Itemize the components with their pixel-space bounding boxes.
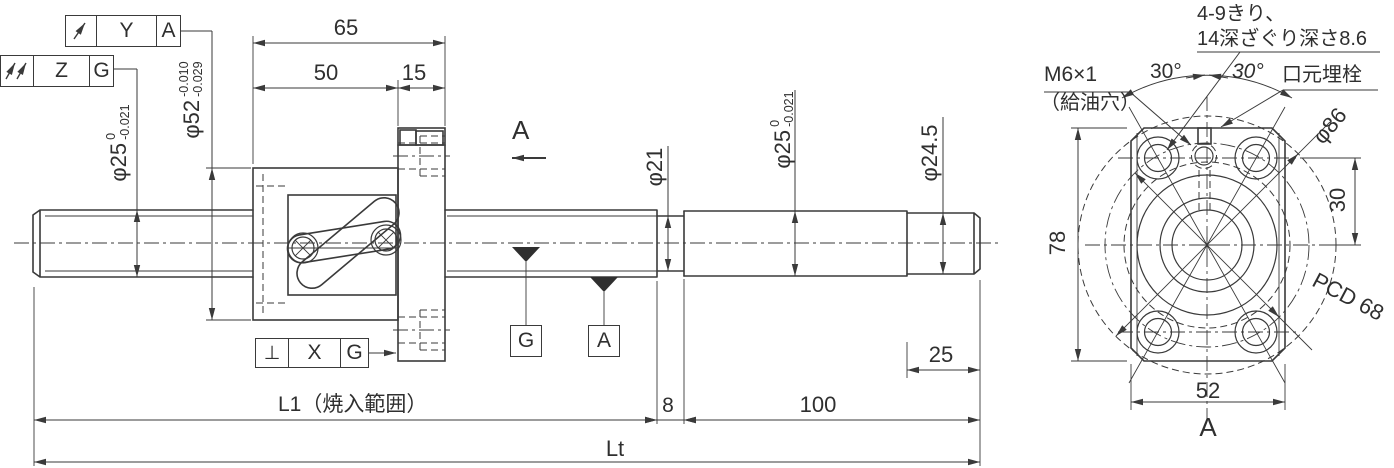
angle-30-left: 30°: [1150, 60, 1182, 83]
total-runout-icon: [1, 56, 33, 86]
dia-journal-label: φ25 0 -0.021: [769, 80, 797, 180]
end-view-label: A: [1178, 413, 1238, 442]
dim-52: 52: [1178, 379, 1238, 403]
dia-nut-od-label: φ52 -0.010 -0.029: [177, 44, 207, 156]
dim-30: 30: [1326, 185, 1350, 215]
note-plug: 口元埋栓: [1282, 64, 1362, 86]
dia-end-label: φ24.5: [917, 121, 943, 185]
main-view-linework: [14, 128, 1000, 361]
gdt-frame-circular-runout: Y A: [65, 15, 181, 47]
datum-triangle-a: [590, 277, 618, 292]
circular-runout-icon: [66, 16, 96, 46]
datum-box-a: A: [588, 325, 620, 357]
dim-65: 65: [316, 16, 376, 40]
ball-screw-technical-drawing: Y A Z G ⊥ X G 65 50 15 φ25 0 -0.021 φ52 …: [0, 0, 1394, 468]
nut-flange: [398, 128, 445, 361]
nut-recess: [288, 195, 396, 295]
gdt-zone-label: X: [288, 339, 340, 367]
dia-neck-label: φ21: [642, 142, 668, 192]
plug-hatch: [1198, 128, 1211, 144]
dim-lt: Lt: [585, 437, 645, 461]
gdt-datum-ref: A: [156, 16, 180, 46]
dim-15: 15: [384, 61, 444, 85]
section-arrow-label: A: [512, 116, 529, 145]
perpendicularity-icon: ⊥: [256, 339, 288, 367]
datum-box-g: G: [510, 325, 542, 357]
gdt-datum-ref: G: [89, 56, 113, 86]
dim-8: 8: [658, 394, 678, 417]
gdt-frame-total-runout: Z G: [0, 55, 114, 87]
dim-l1: L1（焼入範囲）: [278, 393, 427, 416]
gdt-zone-label: Y: [96, 16, 156, 46]
gdt-datum-ref: G: [340, 339, 368, 367]
note-oil-port-sub: （給油穴）: [1040, 92, 1140, 114]
dim-25: 25: [911, 343, 971, 367]
note-holes-line1: 4-9きり、: [1197, 3, 1285, 25]
dim-50: 50: [296, 61, 356, 85]
note-oil-port: M6×1: [1044, 63, 1097, 86]
datum-triangle-g: [512, 247, 540, 262]
dia-screw-label: φ25 0 -0.021: [105, 93, 133, 193]
angle-30-right: 30°: [1232, 60, 1264, 83]
dim-78: 78: [1046, 228, 1070, 258]
dim-100: 100: [788, 393, 848, 417]
gdt-zone-label: Z: [33, 56, 89, 86]
note-holes-line2: 14深ざぐり深さ8.6: [1197, 28, 1367, 50]
gdt-frame-perpendicularity: ⊥ X G: [255, 338, 369, 368]
